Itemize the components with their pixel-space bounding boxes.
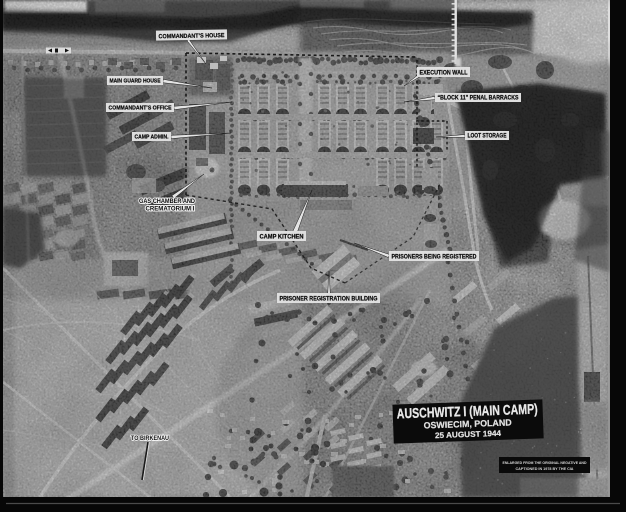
svg-text:GAS CHAMBER AND: GAS CHAMBER AND — [139, 198, 195, 205]
svg-text:LOOT STORAGE: LOOT STORAGE — [468, 134, 507, 140]
svg-text:COMMANDANT’S OFFICE: COMMANDANT’S OFFICE — [109, 106, 172, 112]
svg-text:CREMATORIUM I: CREMATORIUM I — [146, 206, 195, 213]
svg-text:COMMANDANT’S HOUSE: COMMANDANT’S HOUSE — [158, 33, 224, 40]
svg-text:PRISONER REGISTRATION BUILDING: PRISONER REGISTRATION BUILDING — [280, 297, 378, 303]
svg-text:EXECUTION WALL: EXECUTION WALL — [420, 71, 468, 77]
svg-text:MAIN GUARD HOUSE: MAIN GUARD HOUSE — [110, 79, 161, 85]
svg-text:CAPTIONED IN 1978 BY THE CIA: CAPTIONED IN 1978 BY THE CIA — [516, 466, 574, 471]
svg-text:TO BIRKENAU: TO BIRKENAU — [131, 435, 169, 442]
svg-text:CAMP KITCHEN: CAMP KITCHEN — [260, 235, 304, 241]
svg-text:“BLOCK 11” PENAL BARRACKS: “BLOCK 11” PENAL BARRACKS — [438, 96, 519, 102]
svg-text:CAMP ADMIN.: CAMP ADMIN. — [135, 135, 169, 141]
svg-text:PRISONERS BEING REGISTERED: PRISONERS BEING REGISTERED — [392, 255, 478, 261]
svg-text:ENLARGED FROM THE ORIGINAL NEG: ENLARGED FROM THE ORIGINAL NEGATIVE AND — [503, 460, 587, 465]
